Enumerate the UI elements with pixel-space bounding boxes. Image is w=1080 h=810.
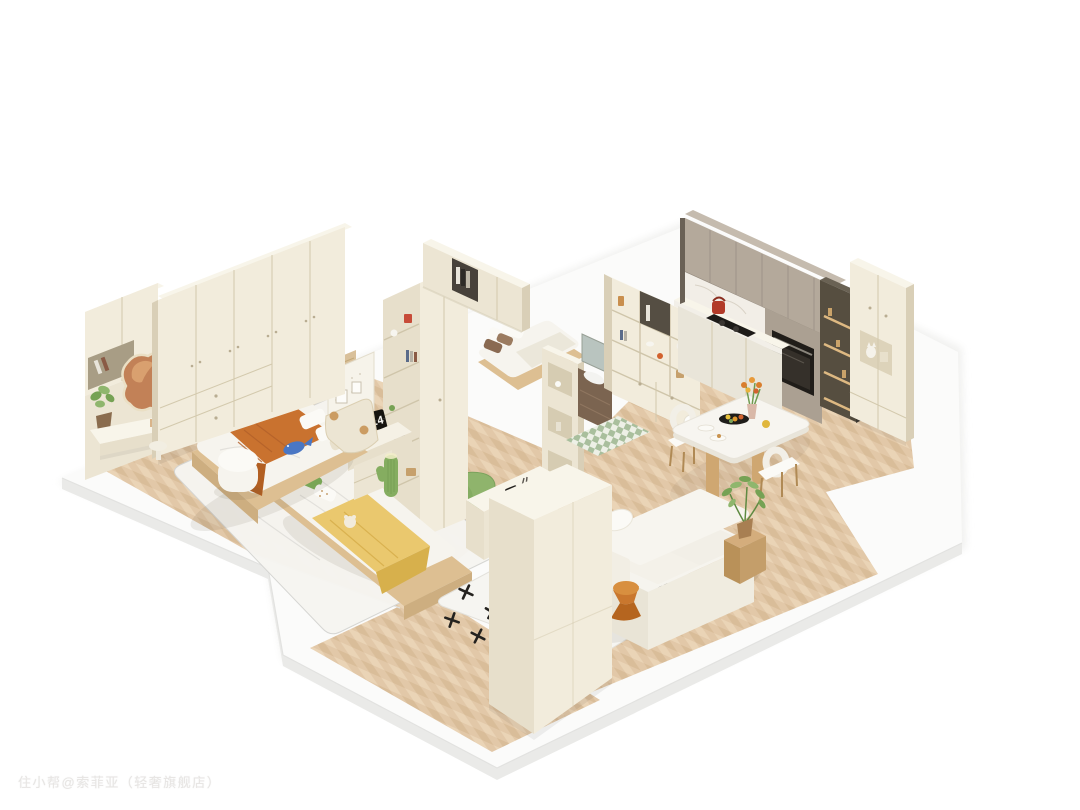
teddy-plush <box>344 515 356 528</box>
render-canvas: 2 14 <box>0 0 1080 810</box>
watermark: 住小帮@索菲亚（轻奢旗舰店） <box>18 772 221 791</box>
apartment-isometric-render: 2 14 <box>0 0 1080 810</box>
hallway-cabinet <box>850 258 914 446</box>
vanity-stool <box>214 448 262 500</box>
